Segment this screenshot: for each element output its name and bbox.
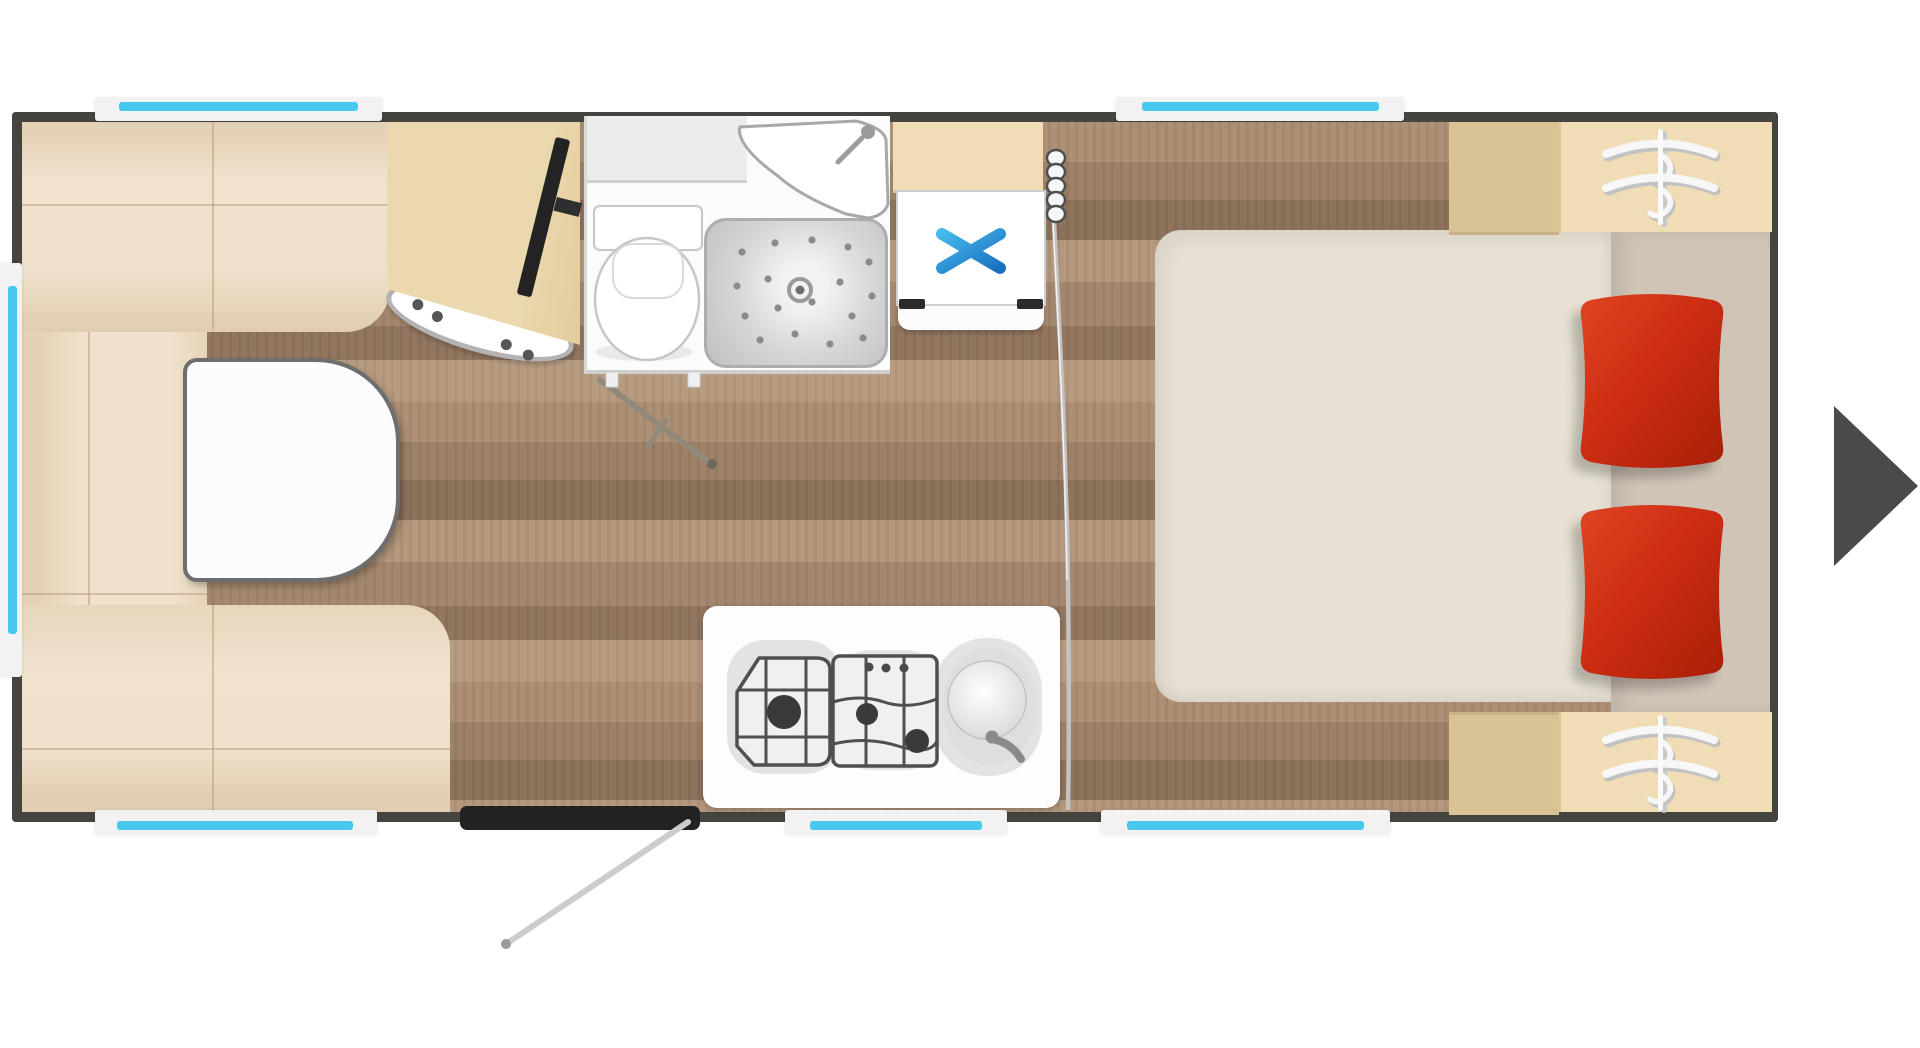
door-swing <box>501 822 688 949</box>
wardrobe-hangers-icon-bottom <box>1606 715 1716 813</box>
shower-drain-dots <box>733 236 875 347</box>
toilet <box>594 206 702 361</box>
divider-curtain <box>1047 150 1069 810</box>
wardrobe-hangers-icon-top <box>1606 129 1716 227</box>
washroom-door-open <box>600 372 717 469</box>
detail-overlay <box>0 0 1920 1048</box>
next-arrow-button[interactable] <box>1834 406 1918 566</box>
caravan-floorplan <box>0 0 1920 1048</box>
freezer-snowflake-icon <box>942 217 1000 285</box>
pillow-top <box>1572 294 1724 478</box>
kitchen-sink <box>943 647 1037 765</box>
pillow-bottom <box>1572 505 1724 689</box>
tv <box>517 137 582 298</box>
washbasin <box>739 121 888 218</box>
